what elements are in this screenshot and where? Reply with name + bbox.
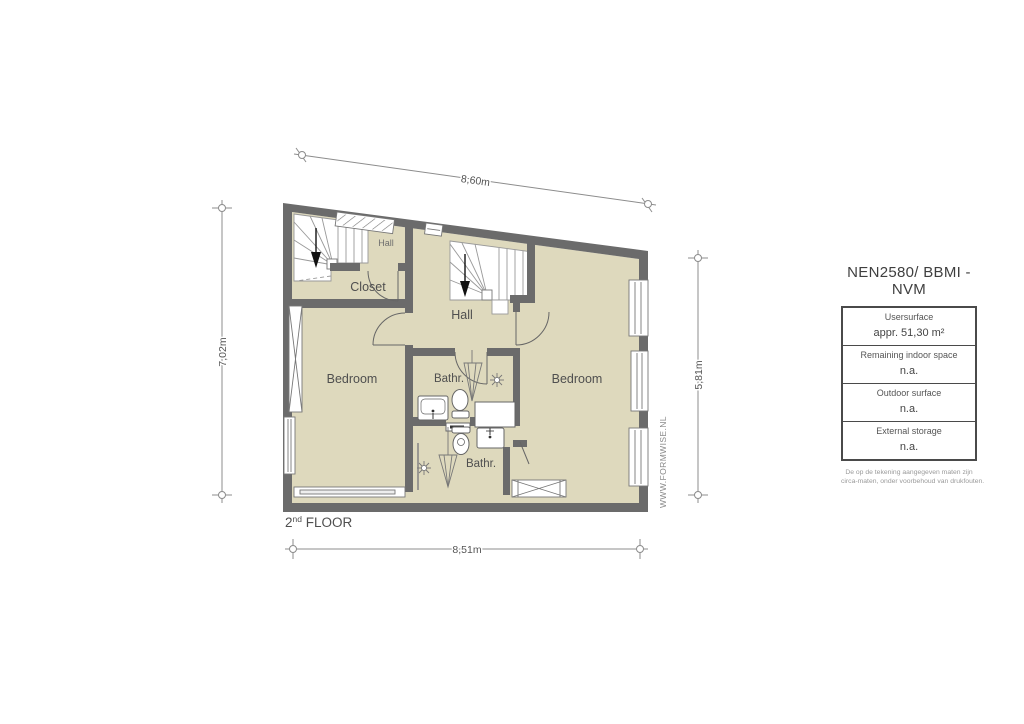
legend-row-external-storage: External storage n.a. [843,421,975,459]
window-top-small [425,223,443,236]
toilet-icon [452,390,469,419]
room-label-hall-small: Hall [378,238,394,248]
dimension-right: 5,81m [688,250,708,503]
dimension-label: 7,02m [217,337,229,366]
floorplan-page: Hall Closet Hall Bedroom Bathr. Bedroom … [0,0,1024,724]
legend-panel: NEN2580/ BBMI - NVM Usersurface appr. 51… [841,264,977,486]
legend-disclaimer: De op de tekening aangegeven maten zijn … [841,468,977,486]
room-label-bathroom-top: Bathr. [434,373,464,385]
legend-row-usersurface: Usersurface appr. 51,30 m² [843,308,975,345]
legend-row-value: n.a. [845,403,973,415]
legend-row-label: Outdoor surface [845,388,973,398]
legend-row-remaining-indoor: Remaining indoor space n.a. [843,345,975,383]
toilet-icon [452,427,470,455]
skylight-box [512,480,566,497]
window-right-2 [631,351,648,411]
dimension-label: 8,60m [460,173,491,189]
legend-row-value: n.a. [845,365,973,377]
legend-row-label: External storage [845,426,973,436]
floor-title: 2nd FLOOR [285,514,352,530]
legend-row-label: Usersurface [845,312,973,322]
room-label-bedroom-left: Bedroom [327,372,378,386]
dimension-left: 7,02m [212,200,232,503]
dimension-label: 8,51m [452,544,481,556]
room-label-hall: Hall [451,308,473,322]
legend-row-label: Remaining indoor space [845,350,973,360]
shower-tray [475,402,515,427]
legend-row-value: n.a. [845,441,973,453]
dimension-label: 5,81m [693,360,705,389]
dimension-bottom: 8,51m [285,539,648,559]
window-right-1 [629,280,648,336]
room-label-bedroom-right: Bedroom [552,372,603,386]
sink-icon [418,396,448,420]
window-right-3 [629,428,648,486]
dimension-top: 8,60m [294,148,656,212]
legend-row-value: appr. 51,30 m² [845,327,973,339]
lamp-icon [417,461,431,475]
lamp-icon [490,373,504,387]
window-left-lower [284,417,295,474]
legend-table: Usersurface appr. 51,30 m² Remaining ind… [841,306,977,461]
room-label-bathroom-bottom: Bathr. [466,458,496,470]
legend-row-outdoor-surface: Outdoor surface n.a. [843,383,975,421]
room-label-closet: Closet [350,280,386,294]
watermark: WWW.FORMWISE.NL [658,416,668,508]
legend-title: NEN2580/ BBMI - NVM [841,264,977,298]
window-bottom-strip [294,487,405,497]
window-left-cross [289,306,302,412]
sink-icon [477,428,504,448]
